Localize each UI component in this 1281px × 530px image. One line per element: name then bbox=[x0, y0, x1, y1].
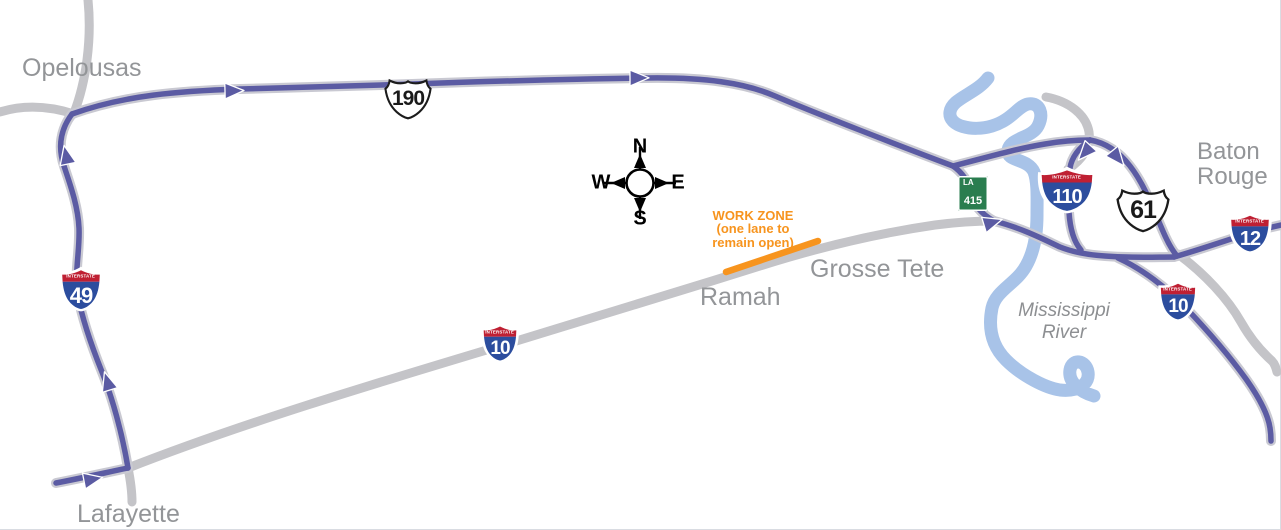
map-geometry bbox=[0, 0, 1281, 530]
i12-shield-banner: INTERSTATE bbox=[1236, 219, 1265, 224]
work-zone-detail: (one lane to remain open) bbox=[712, 221, 794, 249]
us61-shield-icon: 61 bbox=[1116, 188, 1170, 234]
us61-shield-number: 61 bbox=[1116, 191, 1170, 230]
i110-shield-icon: INTERSTATE 110 bbox=[1036, 165, 1098, 215]
i10-east-shield-icon: INTERSTATE 10 bbox=[1157, 279, 1199, 323]
i49-shield-banner: INTERSTATE bbox=[67, 274, 96, 279]
us190-shield-icon: 190 bbox=[384, 78, 432, 121]
compass-south-label: S bbox=[633, 208, 646, 231]
la415-shield-number: 415 bbox=[958, 196, 988, 207]
mississippi-river-label: Mississippi River bbox=[1008, 300, 1120, 345]
city-label-baton-rouge: Baton Rouge bbox=[1197, 139, 1281, 189]
i10-central-shield-number: 10 bbox=[480, 335, 520, 362]
i49-shield-number: 49 bbox=[58, 280, 104, 311]
us190-detour-road bbox=[72, 78, 953, 166]
i49-shield-icon: INTERSTATE 49 bbox=[58, 265, 104, 313]
i10-central-shield-icon: INTERSTATE 10 bbox=[480, 322, 520, 364]
i110-shield-number: 110 bbox=[1036, 181, 1098, 213]
town-label-ramah: Ramah bbox=[700, 284, 781, 310]
city-label-opelousas: Opelousas bbox=[22, 55, 142, 81]
compass-north-label: N bbox=[633, 136, 647, 159]
detour-map-canvas: N W E S Opelousas Lafayette Baton Rouge … bbox=[0, 0, 1281, 530]
us190-west-stub-road bbox=[0, 107, 74, 114]
work-zone-title: WORK ZONE bbox=[700, 209, 806, 222]
i10-south-of-lafayette-stub bbox=[128, 468, 132, 502]
city-label-lafayette: Lafayette bbox=[77, 501, 180, 527]
i10-east-shield-number: 10 bbox=[1157, 293, 1199, 321]
i12-shield-number: 12 bbox=[1227, 225, 1273, 253]
i10-central-shield-banner: INTERSTATE bbox=[486, 330, 515, 335]
town-label-grosse-tete: Grosse Tete bbox=[810, 256, 944, 282]
i110-shield-banner: INTERSTATE bbox=[1053, 175, 1082, 180]
work-zone-callout: WORK ZONE (one lane to remain open) bbox=[700, 209, 806, 249]
compass-west-label: W bbox=[592, 172, 611, 195]
la415-shield-state: LA bbox=[962, 179, 975, 187]
us190-east-arrow bbox=[630, 70, 649, 86]
i12-shield-icon: INTERSTATE 12 bbox=[1227, 211, 1273, 255]
i10-east-shield-banner: INTERSTATE bbox=[1164, 287, 1193, 292]
la415-shield-icon: LA 415 bbox=[958, 176, 988, 211]
us190-shield-number: 190 bbox=[384, 81, 432, 117]
compass-east-label: E bbox=[671, 172, 684, 195]
